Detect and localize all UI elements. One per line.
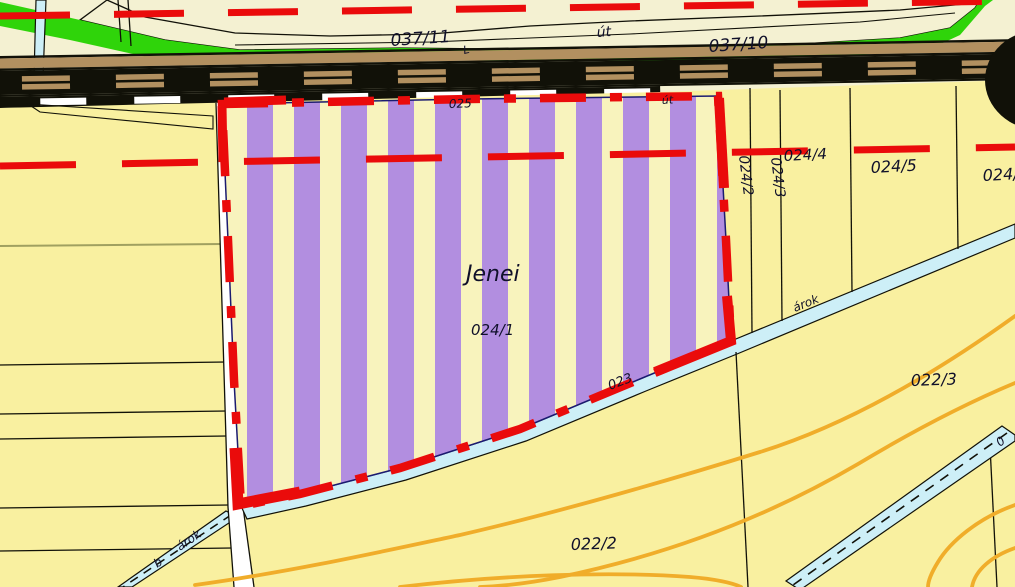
label-ut-top: út xyxy=(596,24,612,41)
cadastral-map: 037/11 út 037/10 L 025 út Jenei 024/1 02… xyxy=(0,0,1015,587)
label-022-3: 022/3 xyxy=(910,369,957,390)
cadastral-map-viewport: 037/11 út 037/10 L 025 út Jenei 024/1 02… xyxy=(0,0,1015,587)
label-037-10: 037/10 xyxy=(708,33,769,57)
label-037-11: 037/11 xyxy=(390,27,451,51)
label-024-6: 024/6 xyxy=(982,164,1015,185)
label-ut-small: út xyxy=(661,93,674,107)
label-024-5: 024/5 xyxy=(870,156,917,177)
label-024-1: 024/1 xyxy=(471,321,514,339)
label-owner-jenei: Jenei xyxy=(462,262,520,287)
label-024-4: 024/4 xyxy=(783,145,827,165)
label-025: 025 xyxy=(449,96,472,111)
label-022-2: 022/2 xyxy=(570,533,617,554)
